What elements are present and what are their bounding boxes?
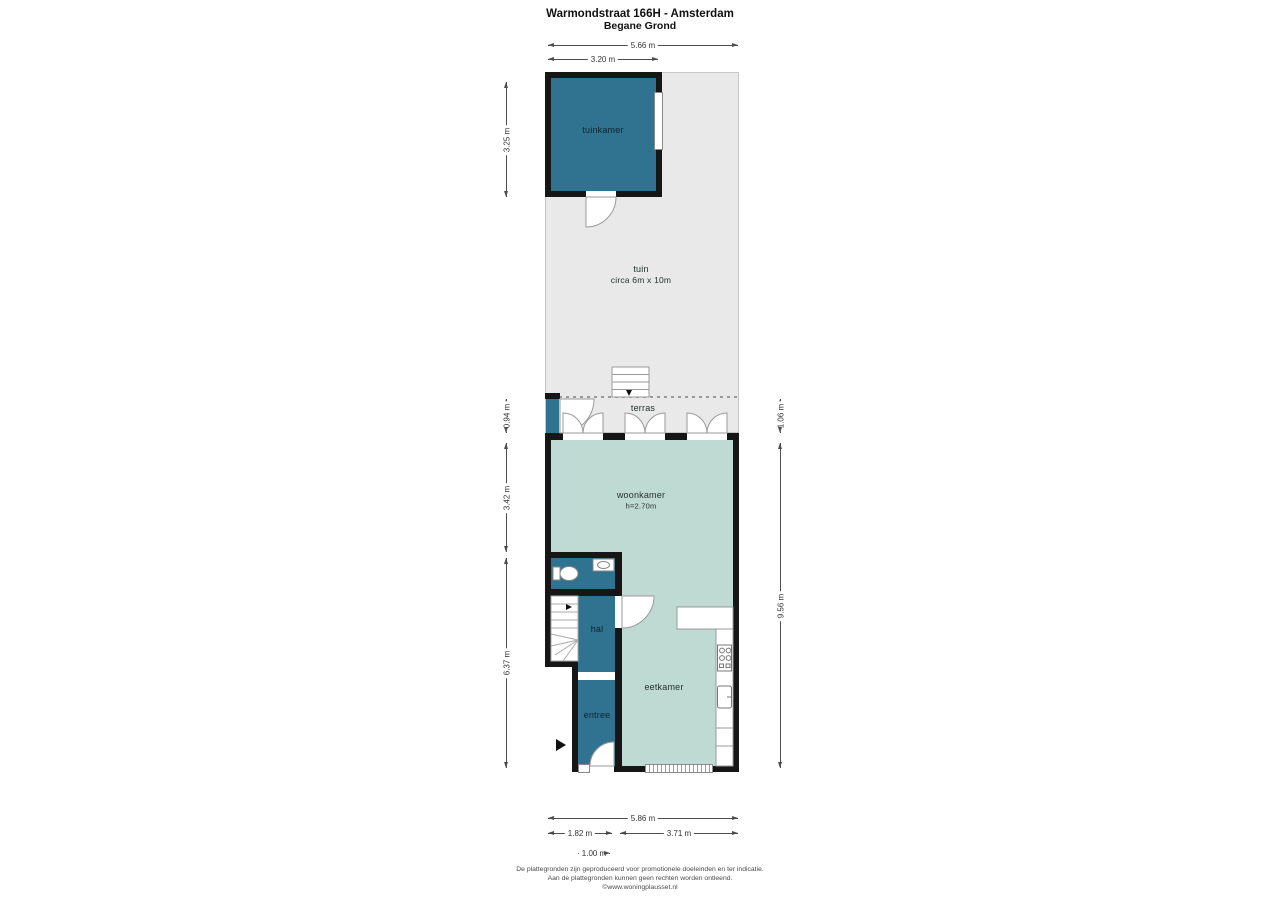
dimension-bottom-entree-label: 1.00 m: [579, 849, 609, 858]
dimension-left-woonkamer-label: 3.42 m: [503, 482, 512, 512]
dimension-right-terras-label: 1.06 m: [777, 401, 786, 431]
radiator: [645, 764, 713, 773]
wall-corridor-lower: [615, 628, 622, 766]
dimension-right-total-label: 9.56 m: [777, 590, 786, 620]
dimension-bottom-total: 5.86 m: [548, 818, 738, 819]
floorplan-page: Warmondstraat 166H - Amsterdam Begane Gr…: [0, 0, 1280, 905]
wall-tuinkamer-top: [545, 72, 662, 78]
dimension-left-tuinkamer-label: 3.25 m: [503, 124, 512, 154]
label-woonkamer: woonkamer: [617, 490, 665, 500]
dimension-top-tuinkamer-label: 3.20 m: [588, 55, 618, 64]
label-terras: terras: [631, 403, 655, 413]
disclaimer-line2: Aan de plattegronden kunnen geen rechten…: [440, 874, 840, 883]
dimension-bottom-total-label: 5.86 m: [628, 814, 658, 823]
floor-title: Begane Grond: [0, 20, 1280, 32]
dimension-left-woonkamer: 3.42 m: [506, 443, 507, 552]
wall-tuinkamer-bottom-left: [545, 191, 586, 197]
dimension-bottom-entree: 1.00 m: [578, 853, 610, 854]
label-tuin: tuin: [633, 264, 648, 274]
label-entree: entree: [584, 710, 611, 720]
disclaimer-line3: ©www.woningplausset.nl: [440, 883, 840, 892]
dimension-left-terras-label: 0.94 m: [503, 401, 512, 431]
label-eetkamer: eetkamer: [644, 682, 683, 692]
hal-door-threshold: [615, 596, 622, 628]
disclaimer: De plattegronden zijn geproduceerd voor …: [440, 865, 840, 893]
wall-corridor-upper: [615, 552, 622, 596]
dimension-right-total: 9.56 m: [780, 443, 781, 768]
dimension-left-rear: 6.37 m: [506, 558, 507, 768]
wall-house-top-2: [603, 433, 625, 440]
address-title: Warmondstraat 166H - Amsterdam: [0, 8, 1280, 20]
hal-entree-threshold: [578, 672, 615, 680]
dimension-bottom-front-left: 1.82 m: [548, 833, 612, 834]
wall-tuinkamer-left: [545, 72, 551, 197]
dimension-left-rear-label: 6.37 m: [503, 648, 512, 678]
label-woonkamer-height: h=2.70m: [626, 502, 657, 511]
wall-toilet-bottom: [545, 589, 622, 596]
plan-title: Warmondstraat 166H - Amsterdam Begane Gr…: [0, 8, 1280, 32]
hal-floor: [578, 596, 615, 672]
dimension-left-terras: 0.94 m: [506, 399, 507, 433]
dimension-bottom-front-left-label: 1.82 m: [565, 829, 595, 838]
frenchdoor-gap-1: [563, 433, 603, 440]
dimension-top-total-label: 5.66 m: [628, 41, 658, 50]
wall-storage-top: [545, 393, 560, 399]
wall-tuinkamer-bottom-right: [616, 191, 662, 197]
label-hal: hal: [591, 624, 604, 634]
disclaimer-line1: De plattegronden zijn geproduceerd voor …: [440, 865, 840, 874]
entree-floor: [578, 680, 615, 766]
frenchdoor-gap-2: [625, 433, 665, 440]
entrance-arrow-icon: [556, 739, 566, 751]
front-sidelight-window: [578, 764, 590, 773]
label-tuin-size: circa 6m x 10m: [611, 275, 671, 285]
toilet-floor: [551, 558, 615, 589]
wall-house-left-upper: [545, 433, 551, 667]
dimension-bottom-front-right: 3.71 m: [620, 833, 738, 834]
dimension-top-total: 5.66 m: [548, 45, 738, 46]
dimension-bottom-front-right-label: 3.71 m: [664, 829, 694, 838]
front-door-opening: [590, 766, 614, 772]
terras-divider-line: [545, 396, 739, 398]
wall-house-right: [733, 433, 739, 772]
label-tuinkamer: tuinkamer: [582, 125, 623, 135]
tuinkamer-window: [654, 92, 663, 150]
dimension-left-tuinkamer: 3.25 m: [506, 82, 507, 197]
dimension-right-terras: 1.06 m: [780, 399, 781, 433]
dimension-top-tuinkamer: 3.20 m: [548, 59, 658, 60]
frenchdoor-gap-3: [687, 433, 727, 440]
wall-toilet-top: [545, 552, 622, 558]
outside-notch: [545, 667, 572, 772]
terras-storage-floor: [546, 399, 559, 433]
wall-house-top-3: [665, 433, 687, 440]
